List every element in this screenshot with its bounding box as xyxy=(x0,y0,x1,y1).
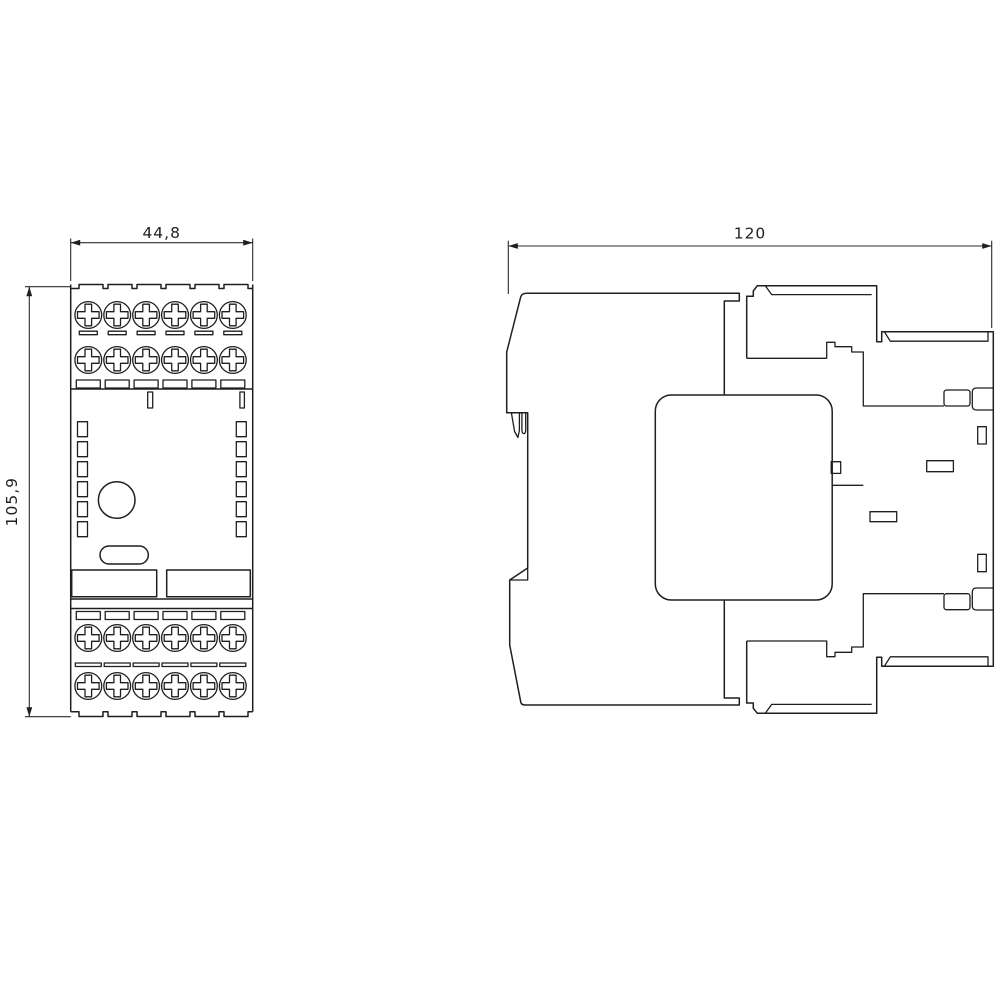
arrowhead-left-icon xyxy=(508,243,518,249)
depth-dimension-label: 120 xyxy=(734,225,767,243)
dimension-height: 105,9 xyxy=(3,287,71,717)
screw-terminal-icon xyxy=(162,625,189,652)
label-pill xyxy=(100,546,148,564)
screw-terminal-icon xyxy=(133,673,160,700)
terminal-divider xyxy=(75,663,101,667)
led-window xyxy=(236,462,246,477)
terminal-divider xyxy=(191,663,217,667)
relay-module-outline xyxy=(655,395,832,600)
led-window xyxy=(236,442,246,457)
terminal-divider xyxy=(79,331,97,335)
label-window-right xyxy=(167,570,251,597)
screw-terminal-icon xyxy=(104,347,131,374)
wire-slot xyxy=(163,612,187,620)
wire-slot xyxy=(105,380,129,388)
side-housing-outline xyxy=(507,293,740,705)
clip-slot xyxy=(522,414,526,434)
terminal-shelf-bottom xyxy=(747,594,944,657)
adjustment-knob xyxy=(98,482,135,519)
wire-slot xyxy=(105,612,129,620)
screw-terminal-icon xyxy=(104,625,131,652)
test-point-window xyxy=(978,427,987,444)
arrowhead-down-icon xyxy=(26,707,32,717)
body-slot xyxy=(148,392,153,408)
screw-terminal-icon xyxy=(162,673,189,700)
terminal-divider xyxy=(137,331,155,335)
screw-terminal-icon xyxy=(219,625,246,652)
screw-terminal-icon xyxy=(219,673,246,700)
clip-tooth xyxy=(512,414,520,438)
screw-terminal-icon xyxy=(219,347,246,374)
terminal-front-contour xyxy=(747,286,994,714)
terminal-divider xyxy=(195,331,213,335)
terminal-shelf-top xyxy=(747,342,944,406)
screw-terminal-icon xyxy=(191,302,218,329)
led-window xyxy=(236,502,246,517)
led-window xyxy=(236,482,246,497)
width-dimension-label: 44,8 xyxy=(142,224,181,242)
dimension-drawing: 44,8 105,9 xyxy=(0,0,1000,1000)
led-window xyxy=(78,502,88,517)
wire-slot xyxy=(221,612,245,620)
led-window xyxy=(78,482,88,497)
cover-ridge-bottom-right xyxy=(884,657,988,667)
screw-terminal-icon xyxy=(133,347,160,374)
extension-lines xyxy=(71,239,253,282)
body-slot xyxy=(240,392,245,408)
front-view xyxy=(71,285,253,717)
face-notch-top xyxy=(972,388,993,410)
screw-terminal-icon xyxy=(133,302,160,329)
wire-slot xyxy=(76,612,100,620)
screw-terminal-icon xyxy=(104,673,131,700)
screw-terminal-icon xyxy=(133,625,160,652)
extension-lines xyxy=(25,287,71,717)
terminal-divider xyxy=(162,663,188,667)
wire-slot xyxy=(192,380,216,388)
screw-terminal-icon xyxy=(75,302,102,329)
cover-ridge-top-right xyxy=(884,332,988,342)
wire-slot xyxy=(76,380,100,388)
screw-terminal-icon xyxy=(191,673,218,700)
wire-slot xyxy=(134,612,158,620)
screw-terminal-icon xyxy=(219,302,246,329)
dimension-width: 44,8 xyxy=(71,224,253,281)
arrowhead-right-icon xyxy=(982,243,992,249)
arrowhead-right-icon xyxy=(243,240,253,246)
led-window xyxy=(78,422,88,437)
cover-ridge-top-left xyxy=(765,286,871,295)
screw-terminal-icon xyxy=(75,347,102,374)
technical-drawing-page: 44,8 105,9 xyxy=(0,0,1000,1000)
face-notch-bottom xyxy=(972,588,993,610)
front-bottom-notched-edge xyxy=(71,712,253,717)
screw-terminal-icon xyxy=(75,673,102,700)
led-window xyxy=(78,442,88,457)
din-rail-clip xyxy=(512,414,526,438)
arrowhead-up-icon xyxy=(26,287,32,297)
terminal-foot-bottom xyxy=(944,594,970,610)
led-window xyxy=(236,522,246,537)
screw-terminal-icon xyxy=(162,347,189,374)
label-window-left xyxy=(72,570,157,597)
terminal-divider xyxy=(220,663,246,667)
extension-lines xyxy=(508,241,991,328)
height-dimension-label: 105,9 xyxy=(3,477,21,526)
front-top-notched-edge xyxy=(71,285,253,289)
screw-terminal-icon xyxy=(75,625,102,652)
arrowhead-left-icon xyxy=(71,240,81,246)
screw-terminal-icon xyxy=(162,302,189,329)
terminal-divider xyxy=(224,331,242,335)
test-point-window xyxy=(927,461,954,472)
terminal-divider xyxy=(108,331,126,335)
terminal-divider xyxy=(166,331,184,335)
side-view xyxy=(507,286,994,714)
led-window xyxy=(78,522,88,537)
terminal-foot-top xyxy=(944,390,970,406)
wire-slot xyxy=(134,380,158,388)
wire-slot xyxy=(221,380,245,388)
screw-terminal-icon xyxy=(191,347,218,374)
terminal-divider xyxy=(104,663,130,667)
terminal-divider xyxy=(133,663,159,667)
test-point-window xyxy=(978,554,987,571)
test-point-window xyxy=(870,512,897,522)
wire-slot xyxy=(192,612,216,620)
cover-ridge-bottom-left xyxy=(765,704,871,713)
wire-slot xyxy=(163,380,187,388)
led-window xyxy=(236,422,246,437)
screw-terminal-icon xyxy=(191,625,218,652)
screw-terminal-icon xyxy=(104,302,131,329)
dimension-depth: 120 xyxy=(508,225,991,329)
led-window xyxy=(78,462,88,477)
